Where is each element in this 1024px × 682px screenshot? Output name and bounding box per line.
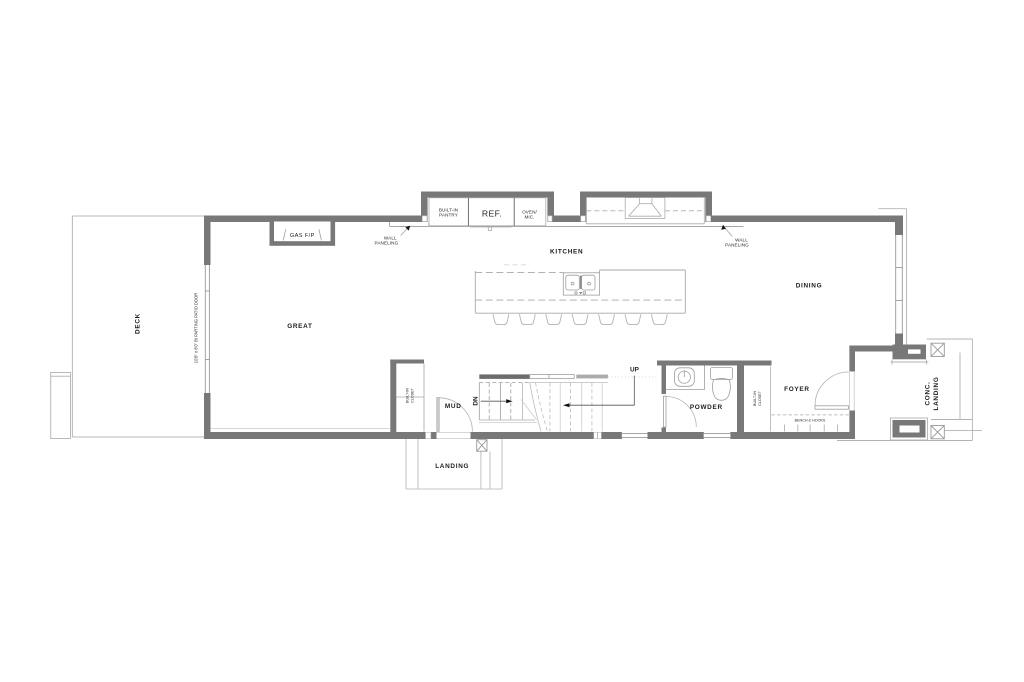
svg-text:GREAT: GREAT bbox=[287, 323, 312, 330]
svg-text:UP: UP bbox=[630, 367, 640, 374]
svg-text:LANDING: LANDING bbox=[933, 376, 940, 410]
svg-text:DN: DN bbox=[472, 396, 479, 406]
svg-text:10'8" x 8'0" BI PARTING PATIO: 10'8" x 8'0" BI PARTING PATIO DOOR bbox=[194, 293, 199, 363]
svg-text:MUD: MUD bbox=[445, 403, 462, 410]
svg-text:LANDING: LANDING bbox=[435, 463, 469, 470]
svg-text:DINING: DINING bbox=[796, 282, 823, 289]
svg-text:MIC.: MIC. bbox=[524, 215, 534, 220]
svg-text:BUILT-IN: BUILT-IN bbox=[753, 391, 757, 406]
svg-text:KITCHEN: KITCHEN bbox=[550, 249, 583, 256]
svg-text:FOYER: FOYER bbox=[784, 386, 810, 393]
svg-text:CLOSET: CLOSET bbox=[758, 390, 762, 406]
svg-text:BENCH & HOOKS: BENCH & HOOKS bbox=[795, 419, 826, 423]
svg-text:DECK: DECK bbox=[135, 313, 142, 334]
svg-text:POWDER: POWDER bbox=[690, 404, 723, 411]
svg-text:CONC.: CONC. bbox=[925, 381, 932, 405]
svg-text:PANTRY: PANTRY bbox=[439, 212, 458, 217]
svg-text:PANELING: PANELING bbox=[375, 241, 399, 246]
svg-text:PANELING: PANELING bbox=[725, 243, 749, 248]
svg-text:GAS F/P: GAS F/P bbox=[290, 233, 315, 239]
svg-text:BUILT-IN: BUILT-IN bbox=[405, 388, 409, 403]
svg-text:REF.: REF. bbox=[482, 209, 502, 219]
svg-text:CLOSET: CLOSET bbox=[410, 387, 414, 403]
